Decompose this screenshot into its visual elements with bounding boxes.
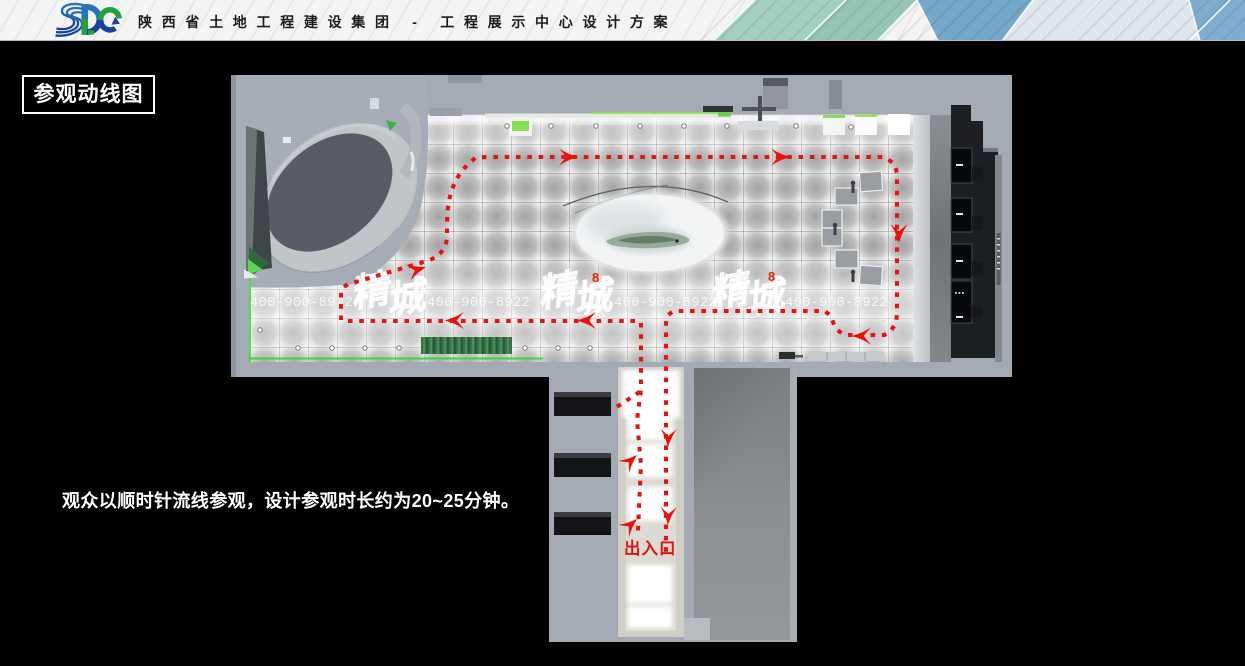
- svg-text:400-900-8922: 400-900-8922: [785, 296, 888, 311]
- svg-text:400-900-8922: 400-900-8922: [427, 296, 530, 311]
- svg-text:8: 8: [768, 269, 775, 284]
- svg-text:400-900-8922: 400-900-8922: [250, 296, 353, 311]
- svg-text:8: 8: [592, 270, 599, 285]
- svg-text:400-900-8922: 400-900-8922: [614, 296, 717, 311]
- svg-text:出入口: 出入口: [624, 538, 677, 558]
